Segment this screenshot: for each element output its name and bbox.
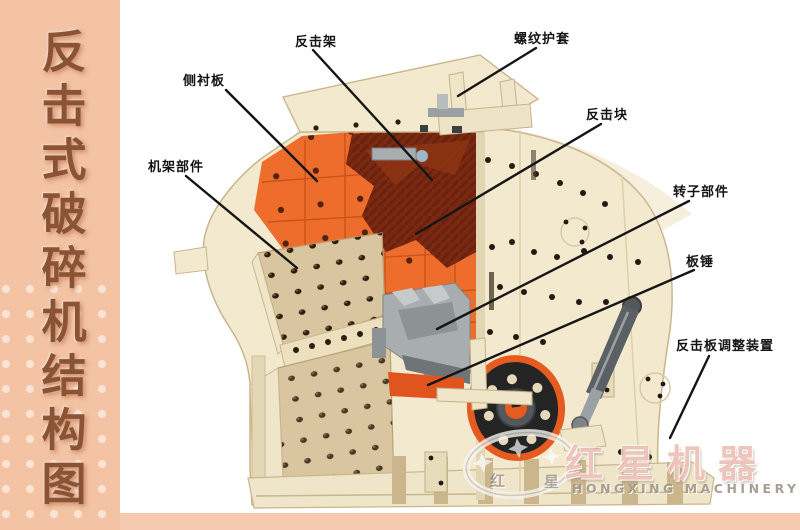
page-title: 反击式破碎机结构图: [38, 28, 83, 514]
page: { "sidebar": { "title": "反击式破碎机结构图", "bg…: [0, 0, 800, 530]
sidebar: 反击式破碎机结构图: [0, 0, 120, 530]
label-impact-plate-adjuster: 反击板调整装置: [676, 335, 774, 354]
label-frame-assembly: 机架部件: [148, 156, 204, 175]
label-blow-bar: 板锤: [686, 251, 714, 270]
label-side-liner-plate: 侧衬板: [183, 70, 225, 89]
crusher-structure-diagram: 反击架 螺纹护套 侧衬板 机架部件 反击块 转子部件 板锤 反击板调整装置 红 …: [120, 0, 800, 530]
label-impact-frame: 反击架: [295, 31, 337, 50]
impact-crusher-illustration: [0, 0, 800, 530]
frame-notch-tab: [174, 247, 208, 274]
label-rotor-assembly: 转子部件: [673, 181, 729, 200]
label-impact-block: 反击块: [586, 104, 628, 123]
label-threaded-sleeve: 螺纹护套: [514, 28, 570, 47]
